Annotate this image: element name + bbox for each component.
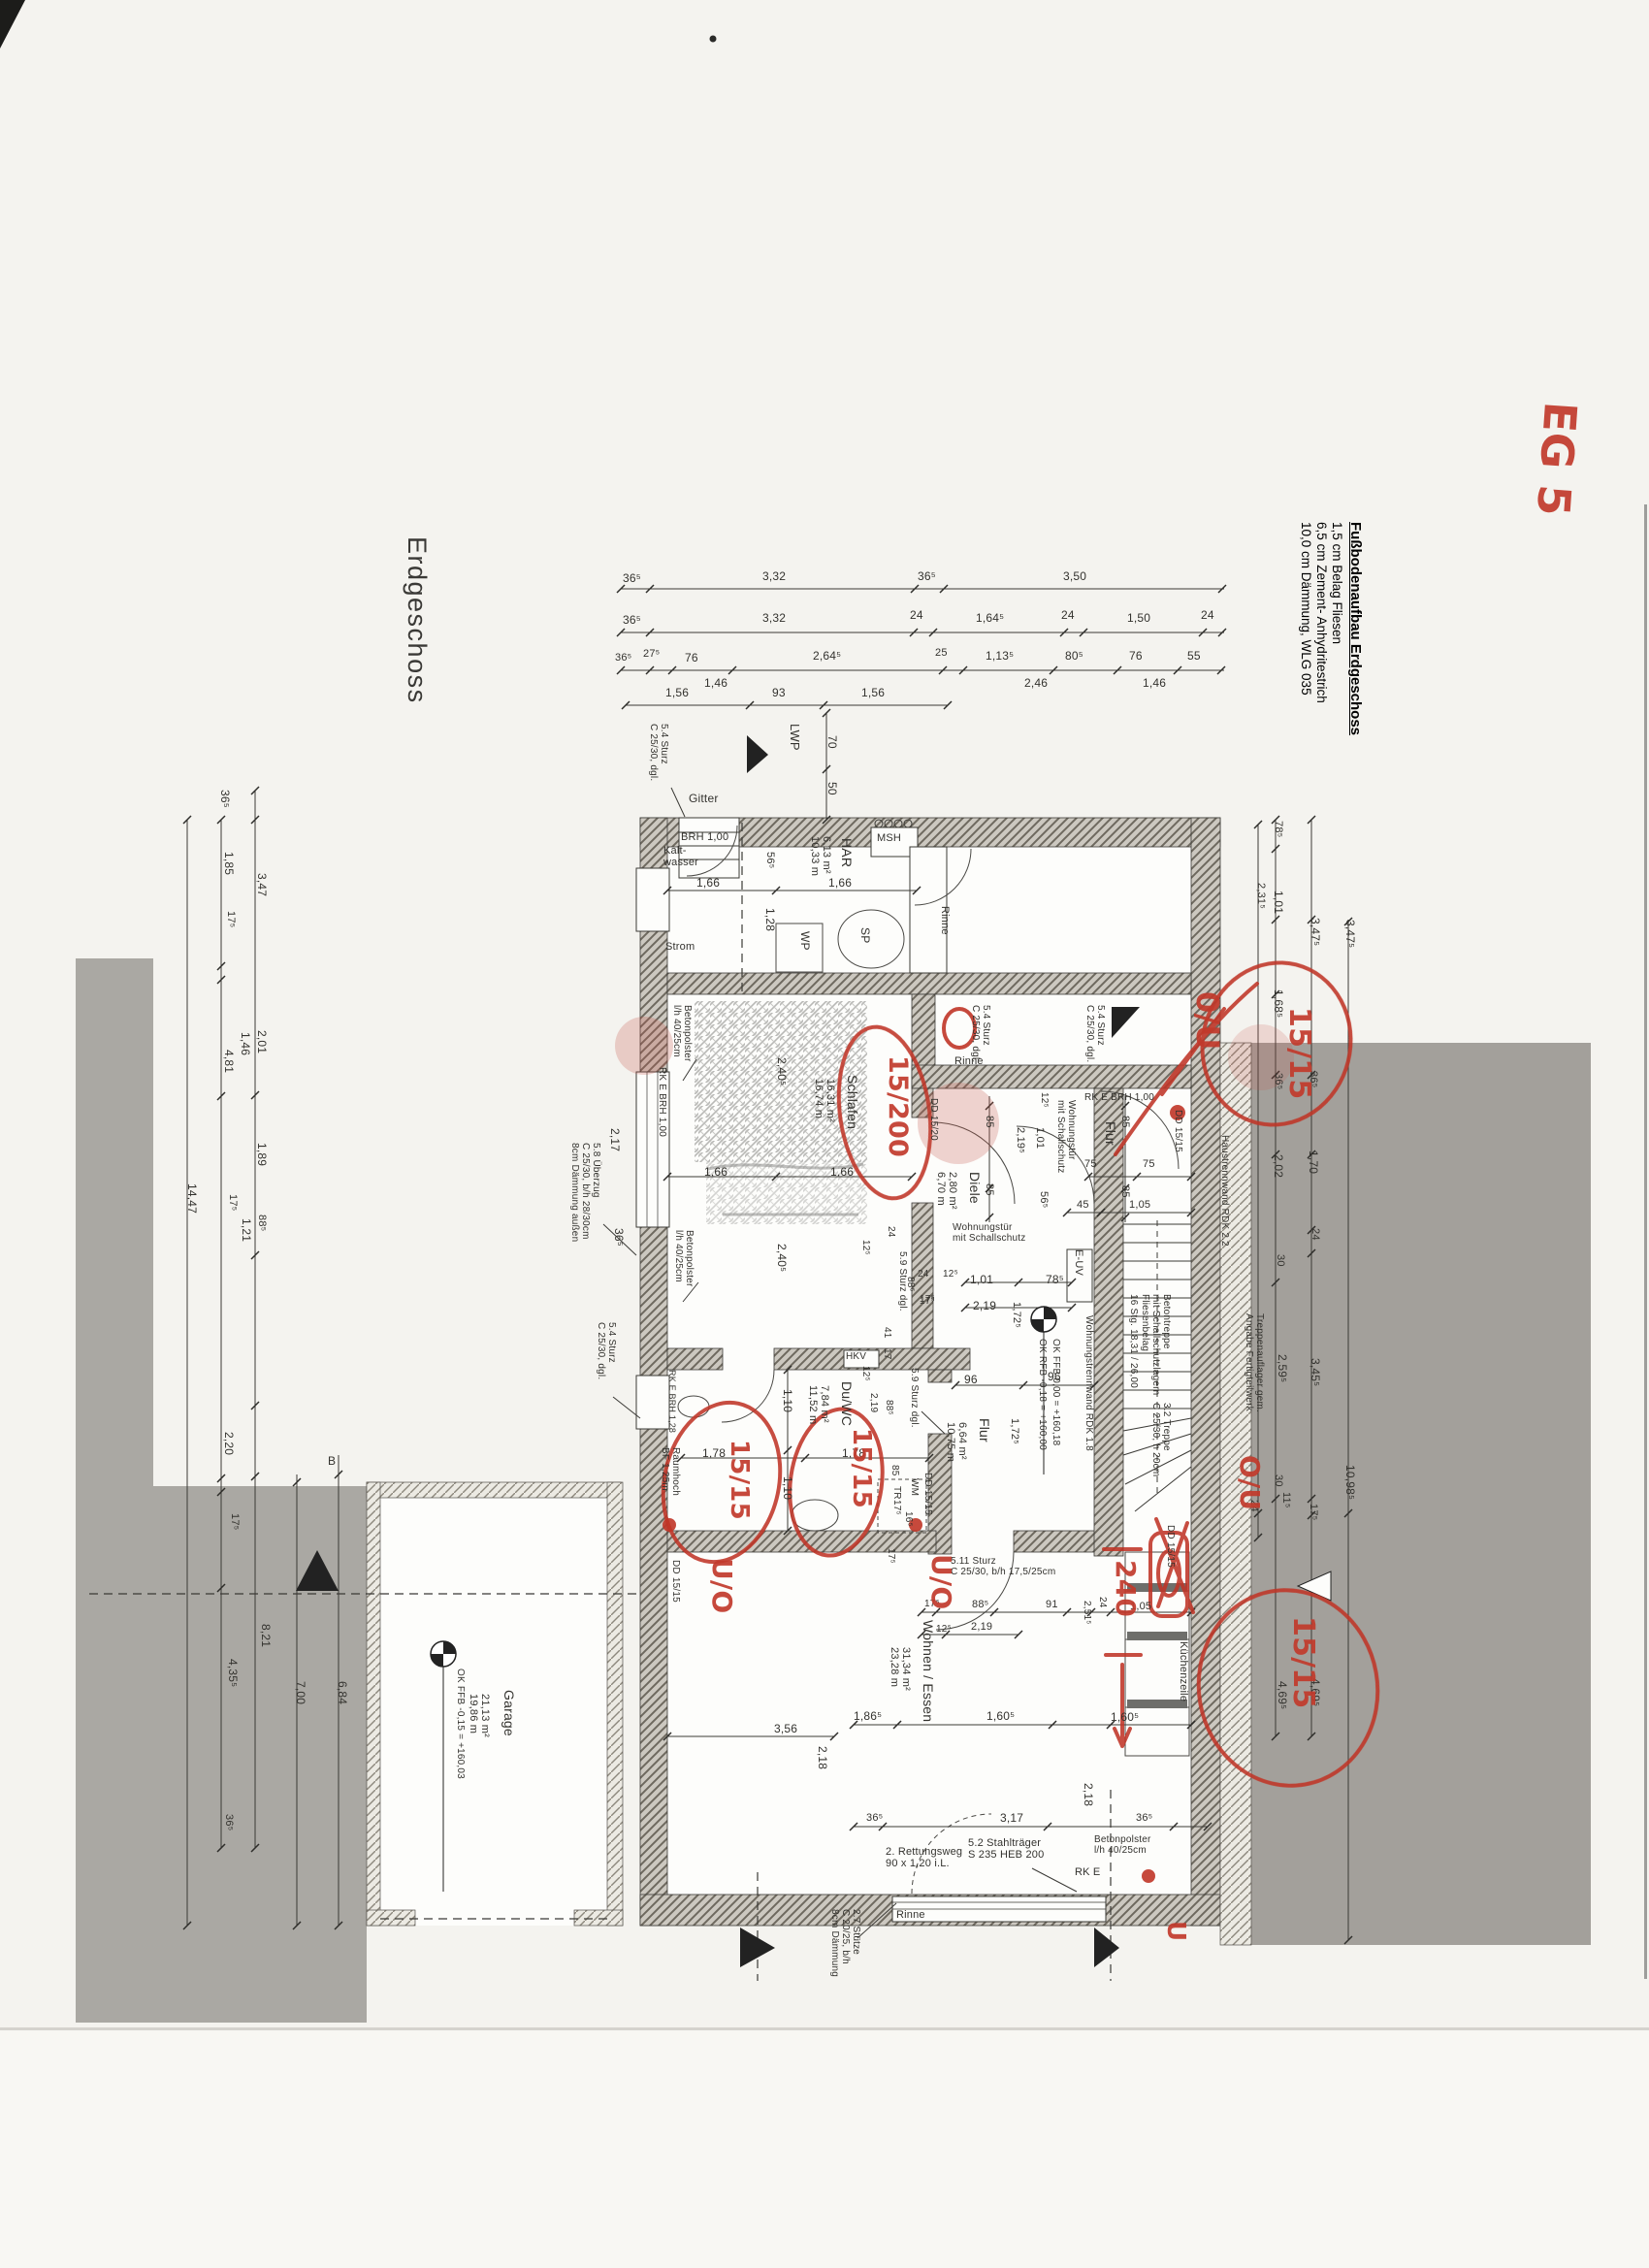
dim-label: 17⁵ [229,1513,241,1530]
dim-label: 6,64 m² 10,75 m [944,1422,968,1462]
ref-callout: 5.4 Sturz C 25/30, dgl. [596,1322,617,1379]
dim-label: 27⁵ [643,648,660,660]
dim-label: 21,13 m² 19,86 m [467,1694,491,1737]
note-label-betonpolster: Betonpolster l/h 40/25cm [1094,1834,1151,1856]
note-label-hoehe: OK RFB -0,18 = +160,00 [1037,1339,1048,1450]
dim-label: 25 [935,647,948,659]
plan-title: Erdgeschoss [403,536,432,704]
dim-label: 88⁵ [884,1400,894,1415]
dim-label: 3,47 [255,873,268,896]
dim-label: 3,47⁵ [1309,918,1321,946]
red-note-15-15: 15/15 [1286,1616,1319,1708]
dim-label: 12⁵ [860,1240,871,1255]
dim-label: 3,50 [1063,570,1086,583]
dim-label: 2,51⁵ [1082,1601,1092,1625]
dim-label: 14,47 [185,1183,198,1214]
dim-label: 2,01 [255,1030,268,1053]
dim-label: 88⁵ [256,1215,268,1231]
dim-label: 2,19 [868,1393,879,1412]
note-label-haustrennwand: Haustrennwand RDK 2.2 [1219,1135,1230,1247]
ref-callout: 5.9 Sturz dgl. [909,1368,920,1428]
note-label-wm: WM [909,1478,920,1496]
note-label-hoehe: OK FFB -0,15 = +160,03 [455,1669,466,1779]
dim-label: BRH 1,00 [681,831,728,843]
dim-label: RK E BRH 1,00 [657,1067,667,1137]
floor-buildup-item: 6,5 cm Zement- Anhydritestrich [1314,522,1329,735]
dim-label: 88⁵ [972,1599,988,1610]
floorplan-linework [0,0,1649,2268]
room-label-wohnen-essen: Wohnen / Essen [920,1620,935,1722]
ref-callout: 2.7 Stütze C 20/25, b/h 8cm Dämmung [828,1909,861,1977]
dim-label: 30 [1273,1474,1284,1487]
room-label-flur-oben: Flur [1102,1121,1117,1146]
red-note-u-o: U/O [707,1558,737,1613]
floor-buildup-note: Fußbodenaufbau Erdgeschoss 1,5 cm Belag … [1299,522,1364,735]
dim-label: RK E BRH 1,28 [667,1370,677,1433]
dim-label: 12⁵ [936,1624,952,1635]
dim-label: 24 [910,609,923,622]
note-label-rettungsweg: 2. Rettungsweg 90 x 1,20 i.L. [886,1846,962,1870]
dim-label: 7,84 m² 11,52 m [806,1385,830,1424]
floor-buildup-item: 1,5 cm Belag Fliesen [1330,522,1344,735]
dim-label: 1,66 [828,877,852,890]
ref-callout: 5.2 Stahlträger S 235 HEB 200 [968,1837,1044,1862]
dim-label: 17⁵ [886,1548,896,1564]
dim-label: 24 [886,1226,896,1238]
dim-label: 2,80 m² 6,70 m [934,1172,958,1210]
note-label-kaltwasser: Kalt- wasser [663,845,698,869]
dim-label: 2,17 [608,1128,621,1151]
note-label-wp: WP [798,931,811,951]
dim-label: 17⁵ [227,1194,239,1211]
note-label-betonpolster: Betonpolster l/h 40/25cm [673,1230,695,1287]
dim-label: 2,46 [1024,677,1048,690]
dim-label: 1,46 [239,1032,251,1055]
sheet-mark-eg5: EG 5 [1527,400,1585,517]
ref-callout: 5.8 Überzug C 25/30, b/h 28/30cm 8cm Däm… [568,1143,601,1242]
note-label-hoehe: OK FFB 0,00 = +160,18 [1051,1339,1061,1445]
dim-label: 78⁵ [1273,821,1284,837]
note-label-wohnungstuer: Wohnungstür mit Schallschutz [953,1222,1025,1244]
scan-dot [710,36,717,43]
dim-label: 85 [984,1116,995,1128]
dim-label: DD 15/15 [922,1473,933,1515]
dim-label: 75 [1084,1158,1097,1170]
dim-label: 2,20 [222,1432,235,1455]
dim-label: 1,50 [1127,612,1150,625]
dim-label: 12⁵ [943,1269,958,1280]
dim-label: 3,32 [762,612,786,625]
red-note-u: U [1161,1921,1189,1941]
dim-label: 76 [1129,650,1143,663]
dim-label: 1,10 [781,1389,793,1412]
dim-label: 85 [1119,1185,1131,1198]
ref-callout: 3.2 Treppe C 25/30, h 20cm [1150,1403,1172,1476]
dim-label: 36⁵ [223,1814,235,1831]
site-area-left-strip [76,958,153,1486]
dim-label: 7,00 [294,1681,307,1704]
dim-label: 36⁵ [623,572,641,585]
dim-label: 4,35⁵ [226,1659,239,1687]
dim-label: 24 [1097,1597,1108,1608]
ref-callout: 5.4 Sturz C 25/30, dgl. [648,724,669,781]
room-label-flur-unten: Flur [976,1418,991,1442]
note-label-trennwand: Wohnungstrennwand RDK 1.8 [1083,1315,1094,1451]
dim-label: 16⁵ [903,1511,914,1527]
red-note-15-15: 15/15 [725,1440,753,1520]
dim-label: 2,19 [973,1300,996,1312]
scanned-floorplan-page: Erdgeschoss Fußbodenaufbau Erdgeschoss 1… [0,0,1649,2268]
dim-label: 1,46 [1143,677,1166,690]
floor-buildup-heading: Fußbodenaufbau Erdgeschoss [1347,522,1364,735]
dim-label: 76 [685,652,698,664]
dim-label: 12⁵ [860,1366,871,1381]
dim-label: 1,46 [704,677,727,690]
dim-label: 8,21 [259,1624,272,1647]
red-note-o-u: O/U [1235,1455,1265,1510]
dim-label: 1,89 [255,1143,268,1166]
note-label-hkv: HKV [846,1351,866,1362]
dim-label: 24 [918,1269,929,1280]
dim-label: 36⁵ [623,614,641,627]
note-label-wohnungstuer: Wohnungstür mit Schallschutz [1055,1100,1077,1173]
dim-label: 41 [882,1327,892,1339]
dim-label: 1,60⁵ [986,1710,1015,1723]
paper-below-fold [0,2030,1649,2268]
dim-label: 56⁵ [764,852,776,868]
ref-callout: 5.11 Sturz C 25/30, b/h 17,5/25cm [951,1556,1055,1577]
red-note-15-15: 15/15 [1282,1007,1315,1099]
floor-buildup-item: 10,0 cm Dämmung, WLG 035 [1299,522,1313,735]
red-note-240: 240 [1111,1560,1141,1617]
dim-label: 36⁵ [615,652,631,664]
note-label-treppe: Betontreppe mit Schallschutzlagern Flies… [1128,1294,1172,1395]
dim-label: Raumhoch BF 1,25m [660,1447,681,1496]
dim-label: DD 15/20 [928,1098,939,1141]
dim-label: 17⁵ [891,1500,902,1515]
dim-label: 56⁵ [1038,1191,1050,1208]
dim-label: 70 [825,735,838,749]
dim-label: 45 [1077,1199,1089,1211]
dim-label: 55 [1187,650,1201,663]
dim-label: 3,45⁵ [1309,1358,1321,1386]
note-label-schnitt-b: B [328,1455,336,1468]
dim-label: 2,31⁵ [1255,883,1267,909]
note-label-strom: Strom [665,941,695,953]
note-label-tr: TR [891,1486,902,1500]
ref-callout: 5.4 Sturz C 25/30, dgl. [1084,1005,1106,1062]
dim-label: 11⁵ [1280,1492,1292,1508]
dim-label: 1,10 [781,1476,793,1500]
dim-label: 24 [1061,609,1075,622]
dim-label: 1,66 [704,1166,727,1179]
dim-label: 3,56 [774,1723,797,1735]
dim-label: 2,02 [1272,1154,1284,1178]
dim-label: 1,60⁵ [1111,1711,1139,1724]
neighbor-building [1251,1043,1591,1945]
dim-label: 30 [1275,1254,1286,1267]
dim-label: 31,34 m² 23,28 m [888,1647,912,1691]
dim-label: 17⁵ [920,1294,935,1305]
room-label-diele: Diele [966,1172,982,1204]
dim-label: RK E [1075,1866,1100,1878]
paper-edge-line [1644,504,1647,1979]
dim-label: 36⁵ [1136,1812,1152,1824]
note-label-rinne: Rinne [939,906,951,935]
dim-label: 2,19 [971,1621,992,1633]
dim-label: 24 [1201,609,1214,622]
dim-label: 85 [984,1183,995,1196]
dim-label: 1,05 [1129,1199,1150,1211]
dim-label: 3,32 [762,570,786,583]
red-note-15-15: 15/15 [847,1428,875,1508]
dim-label: 1,56 [861,687,885,699]
dim-label: 6,84 [336,1681,348,1704]
dim-label: 1,85 [222,852,235,875]
dim-label: 1,13⁵ [986,650,1014,663]
note-label-rinne: Rinne [896,1909,925,1921]
dim-label: 1,86⁵ [854,1710,882,1723]
room-label-duwc: Du/WC [838,1381,854,1426]
dim-label: 2,18 [816,1746,828,1769]
dim-label: 91 [1046,1599,1058,1610]
note-label-kuechenzeile: Küchenzeile [1178,1641,1189,1701]
dim-label: 2,64⁵ [813,650,841,663]
dim-label: DD 15/15 [1173,1110,1183,1152]
note-label-gitter: Gitter [689,793,719,805]
note-label-rinne: Rinne [954,1055,984,1067]
dim-label: 2,40⁵ [775,1244,788,1272]
dim-label: 50 [825,782,838,795]
scan-corner-mark [0,0,25,49]
dim-label: 1,01 [1272,891,1284,914]
dim-label: 2,19⁵ [1015,1127,1026,1153]
dim-label: 6,13 m² 10,33 m [808,836,832,876]
dim-label: 1,66 [696,877,720,890]
dim-label: 1,21 [240,1218,252,1242]
dim-label: 36⁵ [866,1812,883,1824]
dim-label: 1,01 [970,1274,993,1286]
room-label-garage: Garage [501,1690,516,1736]
dim-label: 80⁵ [1065,650,1083,663]
dim-label: 93 [772,687,786,699]
dim-label: 36⁵ [218,790,231,808]
dim-label: 10,98⁵ [1343,1465,1356,1500]
dim-label: 17⁵ [225,911,237,927]
dim-label: 1,66 [830,1166,854,1179]
room-label-schlafen: Schlafen [844,1075,859,1129]
dim-label: DD 15/15 [1165,1525,1176,1568]
dim-label: 85 [889,1465,900,1476]
dim-label: 17⁵ [1308,1504,1319,1520]
note-label-euv: E-UV [1073,1249,1084,1276]
dim-label: 17 [882,1348,892,1360]
dim-label: 96 [1048,1371,1061,1383]
dim-label: 36⁵ [918,570,936,583]
dim-label: 36⁵ [612,1228,625,1247]
dim-label: 16,31 m² 16,74 m [812,1079,836,1122]
dim-label: DD 15/15 [670,1560,681,1603]
dim-label: 1,72⁵ [1009,1418,1020,1444]
dim-label: RK E BRH 1,00 [1084,1092,1154,1103]
dim-label: 1,70 [1307,1150,1319,1174]
dim-label: 2,18 [1082,1783,1094,1806]
section-triangle-bottom-2 [1094,1928,1119,1967]
dim-label: 96 [964,1374,978,1386]
dim-label: 1,64⁵ [976,612,1004,625]
dim-label: 3,17 [1000,1812,1023,1825]
dim-label: 1,01 [1034,1127,1046,1149]
dim-label: 1,28 [763,908,776,931]
dim-label: 2,59⁵ [1276,1354,1288,1382]
note-label-msh: MSH [877,832,901,844]
lwp-arrow [747,735,768,773]
dim-label: 85 [1119,1116,1131,1128]
dim-label: 78⁵ [1046,1274,1064,1286]
note-label-betonpolster: Betonpolster l/h 40/25cm [671,1005,693,1062]
dim-label: 3,47⁵ [1343,920,1356,948]
dim-label: 75 [1143,1158,1155,1170]
red-note-o-u: 0/U [1189,991,1224,1051]
dim-label: 1,78 [702,1447,726,1460]
note-label-treppenauflager: Treppenauflager gem. Angabe Fertigteilwe… [1244,1313,1265,1412]
note-label-sp: SP [858,927,871,943]
dim-label: 2,40⁵ [775,1057,788,1085]
ref-callout: 5.9 Sturz dgl. [897,1251,908,1312]
dim-label: 1,56 [665,687,689,699]
dim-label: 1,72⁵ [1011,1302,1022,1328]
room-label-har: HAR [838,838,854,867]
room-label-lwp: LWP [787,724,801,751]
red-note-u-o: U/O [926,1554,956,1609]
dim-label: 24 [1309,1228,1321,1241]
dim-label: 4,81 [222,1050,235,1073]
red-note-15-200: 15/200 [883,1055,912,1157]
dim-label: 12⁵ [1039,1092,1050,1108]
ref-callout: 5.4 Sturz C 25/30, dgl. [970,1005,991,1062]
